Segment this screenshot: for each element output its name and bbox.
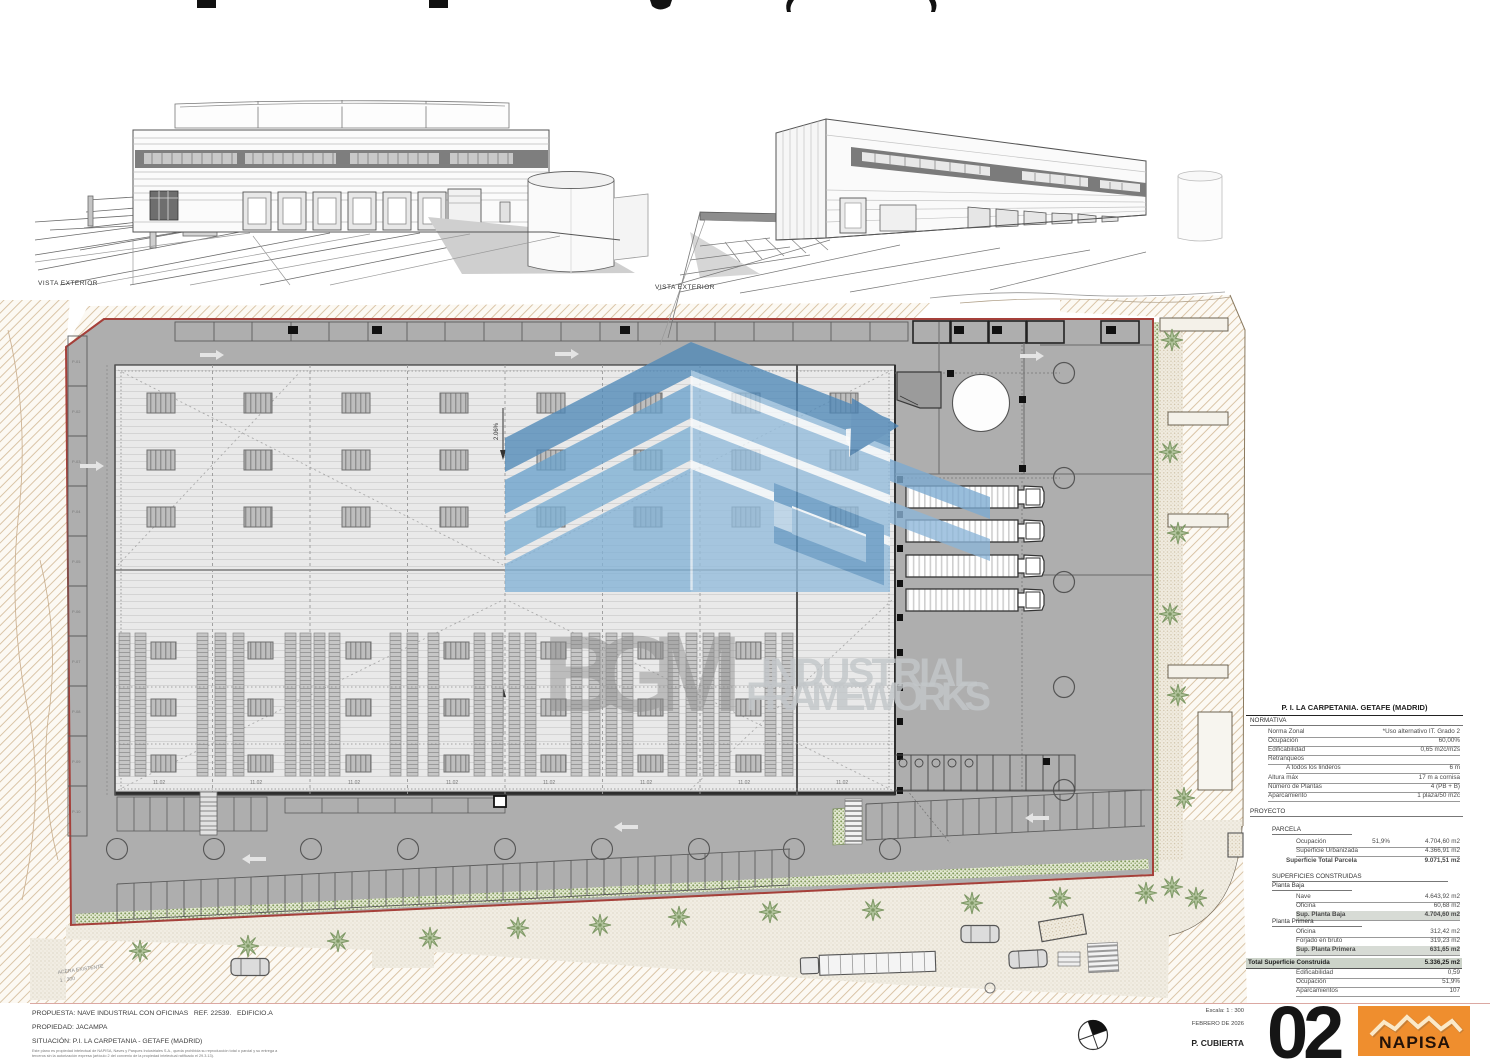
svg-text:11.02: 11.02 (446, 780, 458, 786)
svg-text:11.02: 11.02 (836, 780, 848, 786)
svg-text:11.02: 11.02 (153, 780, 165, 786)
svg-text:P-05: P-05 (72, 559, 81, 564)
svg-text:BGM: BGM (543, 613, 738, 734)
svg-text:11.02: 11.02 (738, 780, 750, 786)
svg-text:P-03: P-03 (72, 459, 81, 464)
svg-text:P-07: P-07 (72, 659, 81, 664)
svg-text:P-04: P-04 (72, 509, 81, 514)
svg-text:FRAMEWORKS: FRAMEWORKS (746, 675, 991, 719)
svg-text:P-09: P-09 (72, 759, 81, 764)
svg-text:11.02: 11.02 (250, 780, 262, 786)
svg-text:P-01: P-01 (72, 359, 81, 364)
svg-text:NAPISA: NAPISA (1379, 1033, 1451, 1052)
svg-text:VISTA EXTERIOR: VISTA EXTERIOR (655, 284, 715, 291)
svg-text:VISTA EXTERIOR: VISTA EXTERIOR (38, 280, 98, 287)
svg-text:11.02: 11.02 (348, 780, 360, 786)
svg-text:P-10: P-10 (72, 809, 81, 814)
svg-text:P-08: P-08 (72, 709, 81, 714)
svg-text:11.02: 11.02 (543, 780, 555, 786)
svg-text:2.06%: 2.06% (494, 422, 500, 440)
svg-text:P-06: P-06 (72, 609, 81, 614)
svg-text:P-02: P-02 (72, 409, 81, 414)
svg-text:11.02: 11.02 (640, 780, 652, 786)
